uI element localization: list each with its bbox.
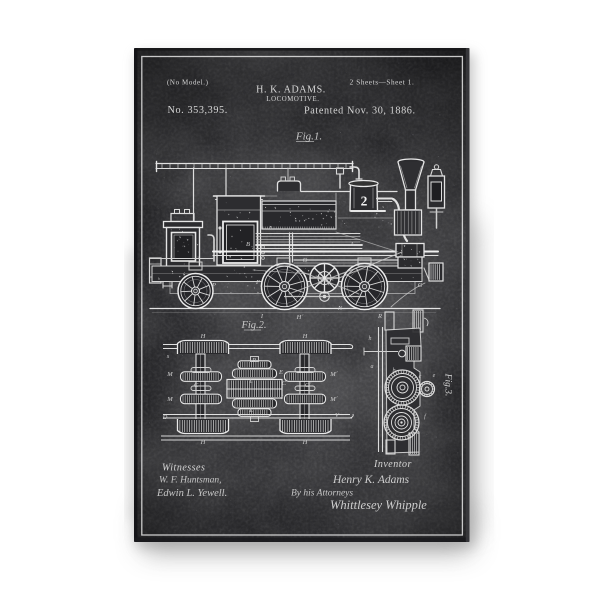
svg-text:E: E xyxy=(278,369,283,376)
svg-text:h: h xyxy=(369,336,372,342)
svg-text:O: O xyxy=(303,257,308,264)
svg-text:Witnesses: Witnesses xyxy=(162,463,205,474)
svg-text:M´: M´ xyxy=(329,371,338,378)
svg-text:e: e xyxy=(433,373,436,379)
svg-text:D: D xyxy=(162,414,168,421)
svg-text:R: R xyxy=(377,313,382,320)
svg-text:H´: H´ xyxy=(296,314,305,321)
svg-text:C: C xyxy=(194,382,199,389)
svg-text:P: P xyxy=(211,282,216,289)
svg-text:Patented Nov. 30, 1886.: Patented Nov. 30, 1886. xyxy=(304,106,416,117)
svg-text:c: c xyxy=(419,374,422,380)
svg-text:a: a xyxy=(371,364,374,370)
svg-text:No. 353,395.: No. 353,395. xyxy=(168,105,228,116)
svg-text:A: A xyxy=(349,241,354,248)
svg-text:2 Sheets—Sheet 1.: 2 Sheets—Sheet 1. xyxy=(350,79,415,87)
svg-text:H: H xyxy=(200,439,206,446)
svg-text:L: L xyxy=(248,378,253,385)
svg-text:b: b xyxy=(393,368,396,374)
svg-text:C´: C´ xyxy=(282,380,289,387)
svg-text:G: G xyxy=(418,282,423,289)
svg-text:M: M xyxy=(166,371,173,378)
svg-text:P: P xyxy=(251,357,256,364)
svg-text:Fig.3.: Fig.3. xyxy=(443,373,453,397)
svg-text:B: B xyxy=(246,241,250,248)
svg-text:M: M xyxy=(166,396,173,403)
svg-text:Edwin L. Yewell.: Edwin L. Yewell. xyxy=(156,488,227,499)
svg-text:Fig.1.: Fig.1. xyxy=(295,131,322,143)
svg-text:H: H xyxy=(200,333,206,340)
svg-text:Fig.2.: Fig.2. xyxy=(240,320,266,331)
svg-text:LOCOMOTIVE.: LOCOMOTIVE. xyxy=(266,96,319,103)
svg-text:M´: M´ xyxy=(329,396,338,403)
svg-text:Henry K. Adams: Henry K. Adams xyxy=(332,474,410,486)
svg-text:N: N xyxy=(337,305,343,312)
svg-text:L: L xyxy=(248,407,253,414)
svg-text:2: 2 xyxy=(361,194,368,209)
svg-text:H: H xyxy=(302,333,308,340)
svg-text:Inventor: Inventor xyxy=(373,459,412,470)
svg-text:W. F. Huntsman,: W. F. Huntsman, xyxy=(159,476,222,486)
svg-text:H: H xyxy=(302,439,308,446)
svg-text:(No Model.): (No Model.) xyxy=(167,79,209,87)
svg-text:By his Attorneys: By his Attorneys xyxy=(291,489,353,499)
svg-text:H. K. ADAMS.: H. K. ADAMS. xyxy=(256,85,326,96)
svg-text:C´: C´ xyxy=(305,382,312,389)
svg-text:Whittlesey Whipple: Whittlesey Whipple xyxy=(330,498,427,512)
